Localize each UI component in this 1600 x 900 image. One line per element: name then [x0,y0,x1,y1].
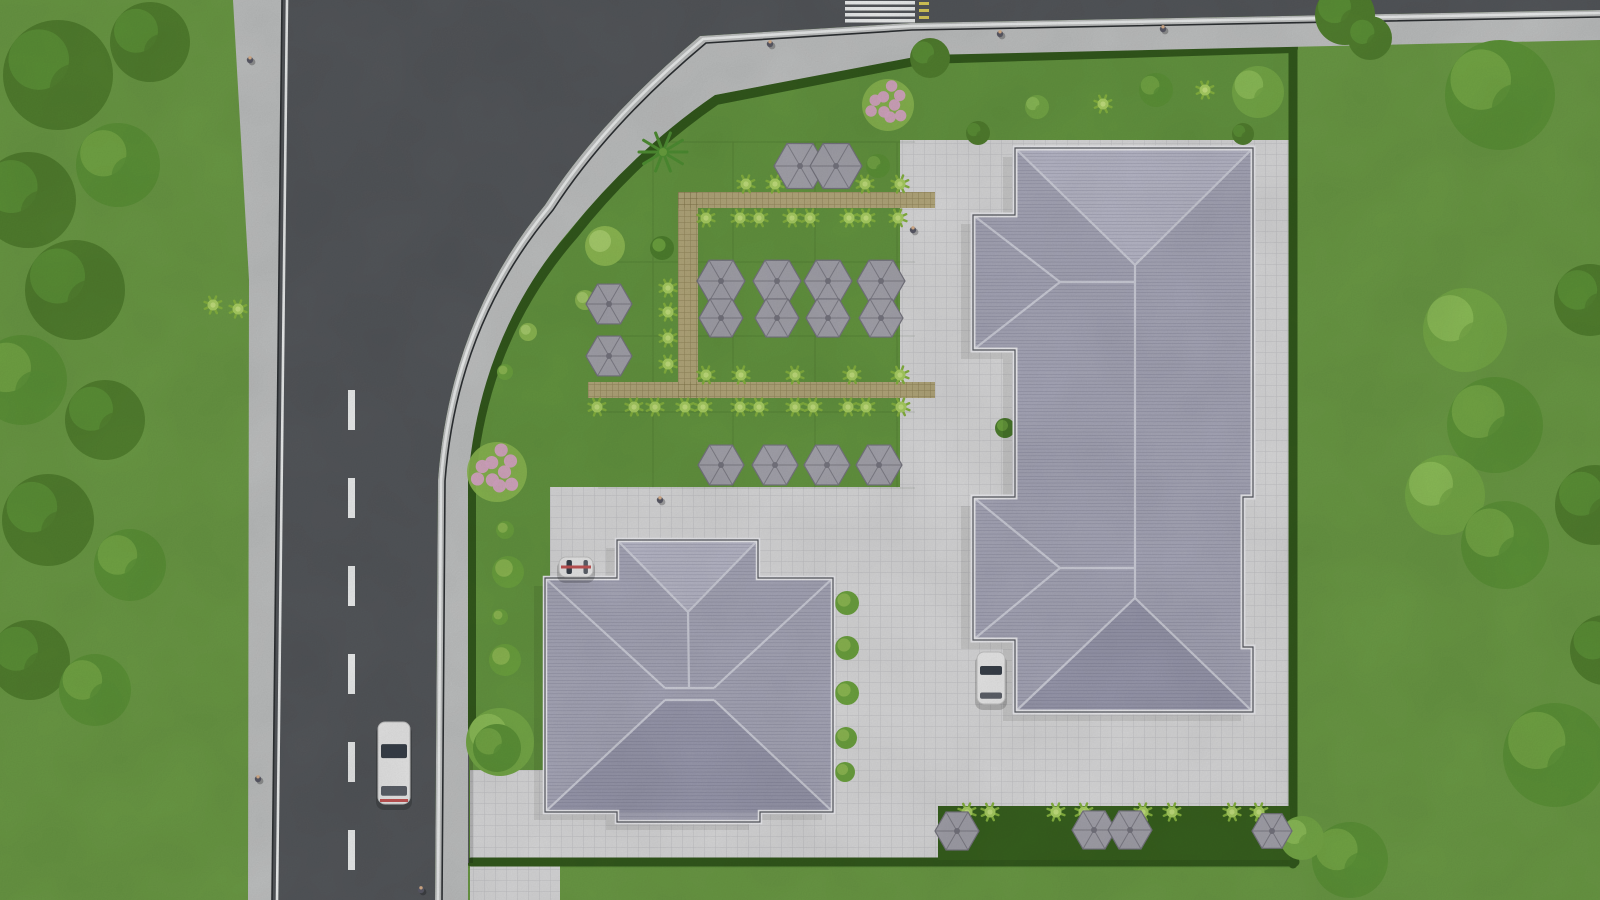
site-plan-render [0,0,1600,900]
aerial-site-plan [0,0,1600,900]
grain-overlay [0,0,1600,900]
